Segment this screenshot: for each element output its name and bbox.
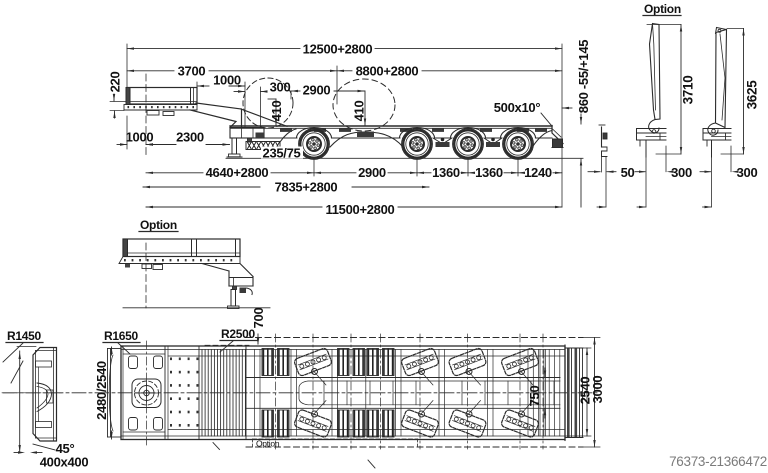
svg-text:2900: 2900 bbox=[358, 165, 386, 180]
svg-text:2300: 2300 bbox=[176, 130, 204, 145]
svg-text:3625: 3625 bbox=[745, 80, 760, 110]
svg-text:2900: 2900 bbox=[303, 83, 331, 98]
svg-text:400x400: 400x400 bbox=[40, 455, 89, 470]
svg-text:4640+2800: 4640+2800 bbox=[206, 165, 269, 180]
svg-text:1360: 1360 bbox=[432, 165, 460, 180]
svg-text:76373-21366472: 76373-21366472 bbox=[669, 454, 767, 469]
svg-text:220: 220 bbox=[108, 72, 123, 93]
svg-text:860 -55/+145: 860 -55/+145 bbox=[576, 40, 591, 113]
svg-text:1360: 1360 bbox=[475, 165, 503, 180]
svg-text:Option: Option bbox=[256, 438, 280, 448]
svg-text:Option: Option bbox=[644, 2, 681, 16]
svg-text:50: 50 bbox=[621, 165, 635, 180]
svg-text:R2500: R2500 bbox=[221, 327, 255, 341]
svg-text:1240: 1240 bbox=[524, 165, 552, 180]
svg-text:300: 300 bbox=[270, 80, 291, 95]
svg-text:410: 410 bbox=[352, 101, 367, 122]
svg-text:8800+2800: 8800+2800 bbox=[356, 64, 419, 79]
svg-text:3000: 3000 bbox=[590, 376, 605, 404]
svg-text:3710: 3710 bbox=[681, 76, 696, 105]
svg-text:750: 750 bbox=[527, 386, 542, 407]
svg-text:11500+2800: 11500+2800 bbox=[326, 202, 395, 217]
svg-text:235/75: 235/75 bbox=[263, 146, 301, 161]
svg-text:300: 300 bbox=[737, 165, 758, 180]
svg-text:500x10°: 500x10° bbox=[494, 100, 541, 115]
svg-text:700: 700 bbox=[251, 308, 266, 329]
svg-text:3700: 3700 bbox=[178, 64, 206, 79]
svg-text:R1450: R1450 bbox=[7, 329, 41, 343]
svg-text:R1650: R1650 bbox=[104, 329, 138, 343]
svg-text:Option: Option bbox=[140, 218, 177, 232]
svg-text:12500+2800: 12500+2800 bbox=[303, 42, 373, 57]
svg-text:7835+2800: 7835+2800 bbox=[275, 180, 338, 195]
svg-text:410: 410 bbox=[269, 101, 284, 122]
svg-text:300: 300 bbox=[671, 165, 692, 180]
svg-text:2480/2540: 2480/2540 bbox=[94, 361, 109, 420]
svg-text:1000: 1000 bbox=[126, 130, 154, 145]
svg-text:1000: 1000 bbox=[213, 73, 241, 88]
